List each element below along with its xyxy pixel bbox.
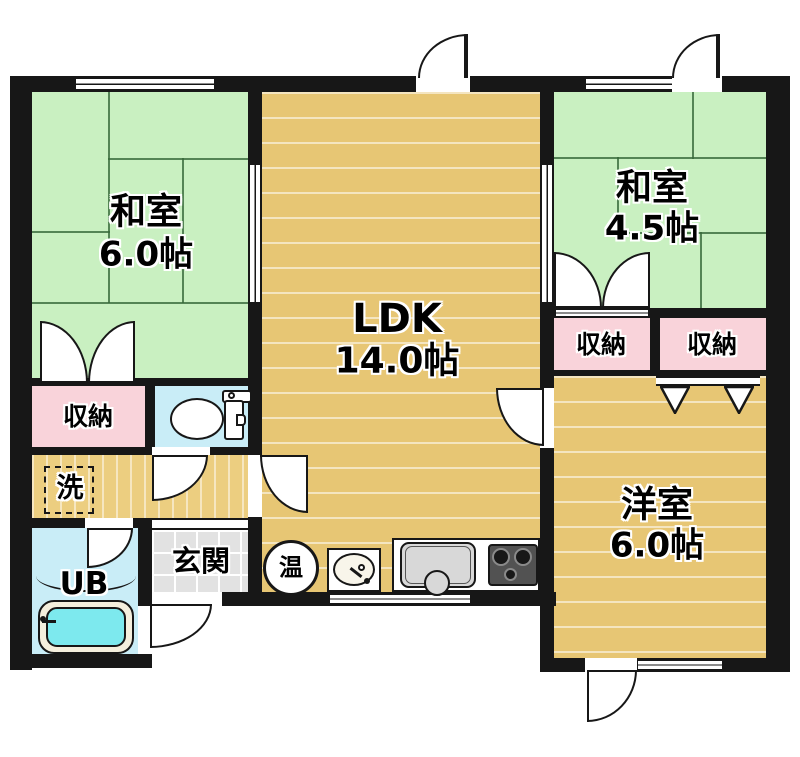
label-washitsu45-size: 4.5帖	[605, 211, 699, 246]
front-door-arc	[150, 604, 212, 648]
wall	[766, 76, 790, 672]
tatami-line	[108, 158, 252, 160]
folding-door-icon	[724, 386, 754, 414]
balcony-door-arc-ldk	[418, 34, 468, 78]
toilet-button-icon	[228, 392, 235, 399]
closet-track-washitsu45	[556, 308, 648, 318]
label-washitsu6-name: 和室	[110, 193, 182, 230]
folding-door-track	[656, 376, 760, 386]
label-closet-left: 収納	[63, 404, 113, 430]
tatami-line	[692, 92, 694, 159]
label-genkan: 玄関	[172, 546, 230, 576]
wall	[138, 518, 152, 592]
window-kitchen	[330, 593, 470, 605]
wall	[650, 318, 660, 370]
folding-door-icon	[660, 386, 690, 414]
washbasin-drain-icon	[364, 578, 370, 584]
label-closet-mid: 収納	[576, 332, 626, 358]
tatami-line	[32, 302, 252, 304]
wall	[10, 654, 152, 668]
label-washitsu45-name: 和室	[616, 169, 688, 206]
door-opening-toilet	[152, 447, 210, 455]
sliding-partition-ldk-washitsu45	[540, 165, 554, 302]
tatami-line	[700, 232, 702, 308]
stove-burner-icon	[514, 548, 532, 566]
genkan-step	[152, 518, 248, 530]
wall	[32, 447, 248, 455]
floor-plan: 和室 6.0帖 LDK 14.0帖 和室 4.5帖 洋室 6.0帖 収納 収納 …	[0, 0, 800, 757]
sliding-partition-washitsu6-ldk	[248, 165, 262, 302]
label-youshitsu-name: 洋室	[621, 486, 693, 523]
label-water-heater: 温	[279, 556, 303, 581]
wall	[145, 378, 155, 455]
toilet-handle-icon	[236, 414, 246, 426]
sink-drain-icon	[424, 570, 450, 596]
tatami-line	[554, 157, 766, 159]
window-youshitsu	[638, 659, 722, 671]
door-opening-balcony-washitsu45	[672, 76, 722, 92]
balcony-door-arc-washitsu45	[672, 34, 720, 78]
stove-burner-icon	[492, 548, 510, 566]
bathtub-icon	[46, 607, 126, 647]
tatami-line	[32, 231, 110, 233]
label-unit-bath: UB	[60, 568, 109, 600]
label-ldk-name: LDK	[352, 299, 442, 341]
label-washitsu6-size: 6.0帖	[99, 237, 193, 272]
tatami-line	[182, 158, 184, 303]
door-opening-balcony-ldk	[416, 76, 470, 92]
wall	[10, 76, 32, 670]
window-washitsu6	[76, 77, 214, 91]
bath-faucet-icon	[40, 616, 46, 622]
toilet-bowl-icon	[170, 398, 224, 440]
youshitsu-door-arc	[587, 670, 637, 722]
washbasin-faucet-icon	[358, 564, 365, 571]
label-ldk-size: 14.0帖	[335, 342, 460, 379]
label-youshitsu-size: 6.0帖	[610, 528, 704, 563]
stove-burner-icon	[504, 568, 517, 581]
label-closet-right: 収納	[687, 332, 737, 358]
door-opening-unit-bath	[85, 518, 133, 528]
label-laundry: 洗	[57, 475, 84, 503]
window-washitsu45	[586, 77, 672, 91]
